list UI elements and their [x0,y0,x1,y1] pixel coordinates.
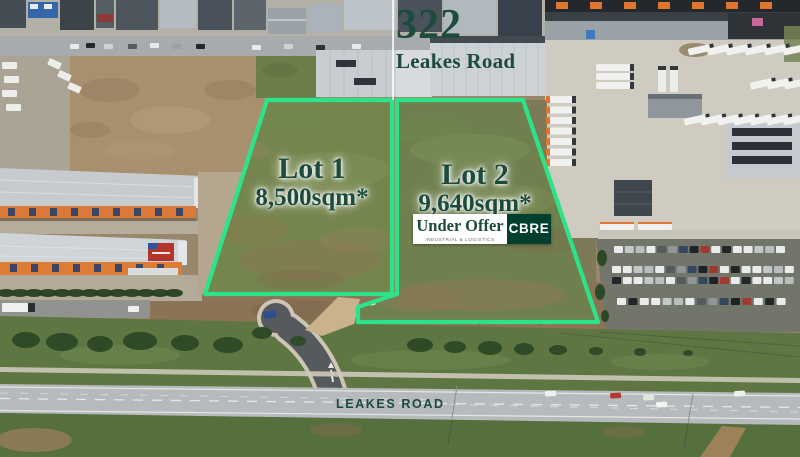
road-name-label: LEAKES ROAD [336,397,445,411]
car-park [595,230,800,332]
grass-strip-top [256,56,318,98]
aerial-property-photo: 322 Leakes Road Lot 1 8,500sqm* Lot 2 9,… [0,0,800,457]
lot2-name: Lot 2 [395,159,555,191]
street-number: 322 [396,4,556,46]
address-callout: 322 Leakes Road [396,4,556,74]
lot1-area-text: 8,500sqm* [232,185,392,211]
under-offer-text: Under Offer [413,217,507,236]
under-offer-box: Under Offer INDUSTRIAL & LOGISTICS [413,214,507,244]
lot2-area-text: 9,640sqm* [395,191,555,217]
cbre-logo: CBRE [507,214,551,244]
warehouses-left [0,168,204,318]
street-name: Leakes Road [396,49,556,74]
under-offer-subtext: INDUSTRIAL & LOGISTICS [413,237,507,242]
callout-line [392,0,394,100]
under-offer-banner: Under Offer INDUSTRIAL & LOGISTICS CBRE [413,214,551,244]
lot1-name: Lot 1 [232,153,392,185]
lot2-label: Lot 2 9,640sqm* [395,159,555,217]
lot1-label: Lot 1 8,500sqm* [232,153,392,211]
